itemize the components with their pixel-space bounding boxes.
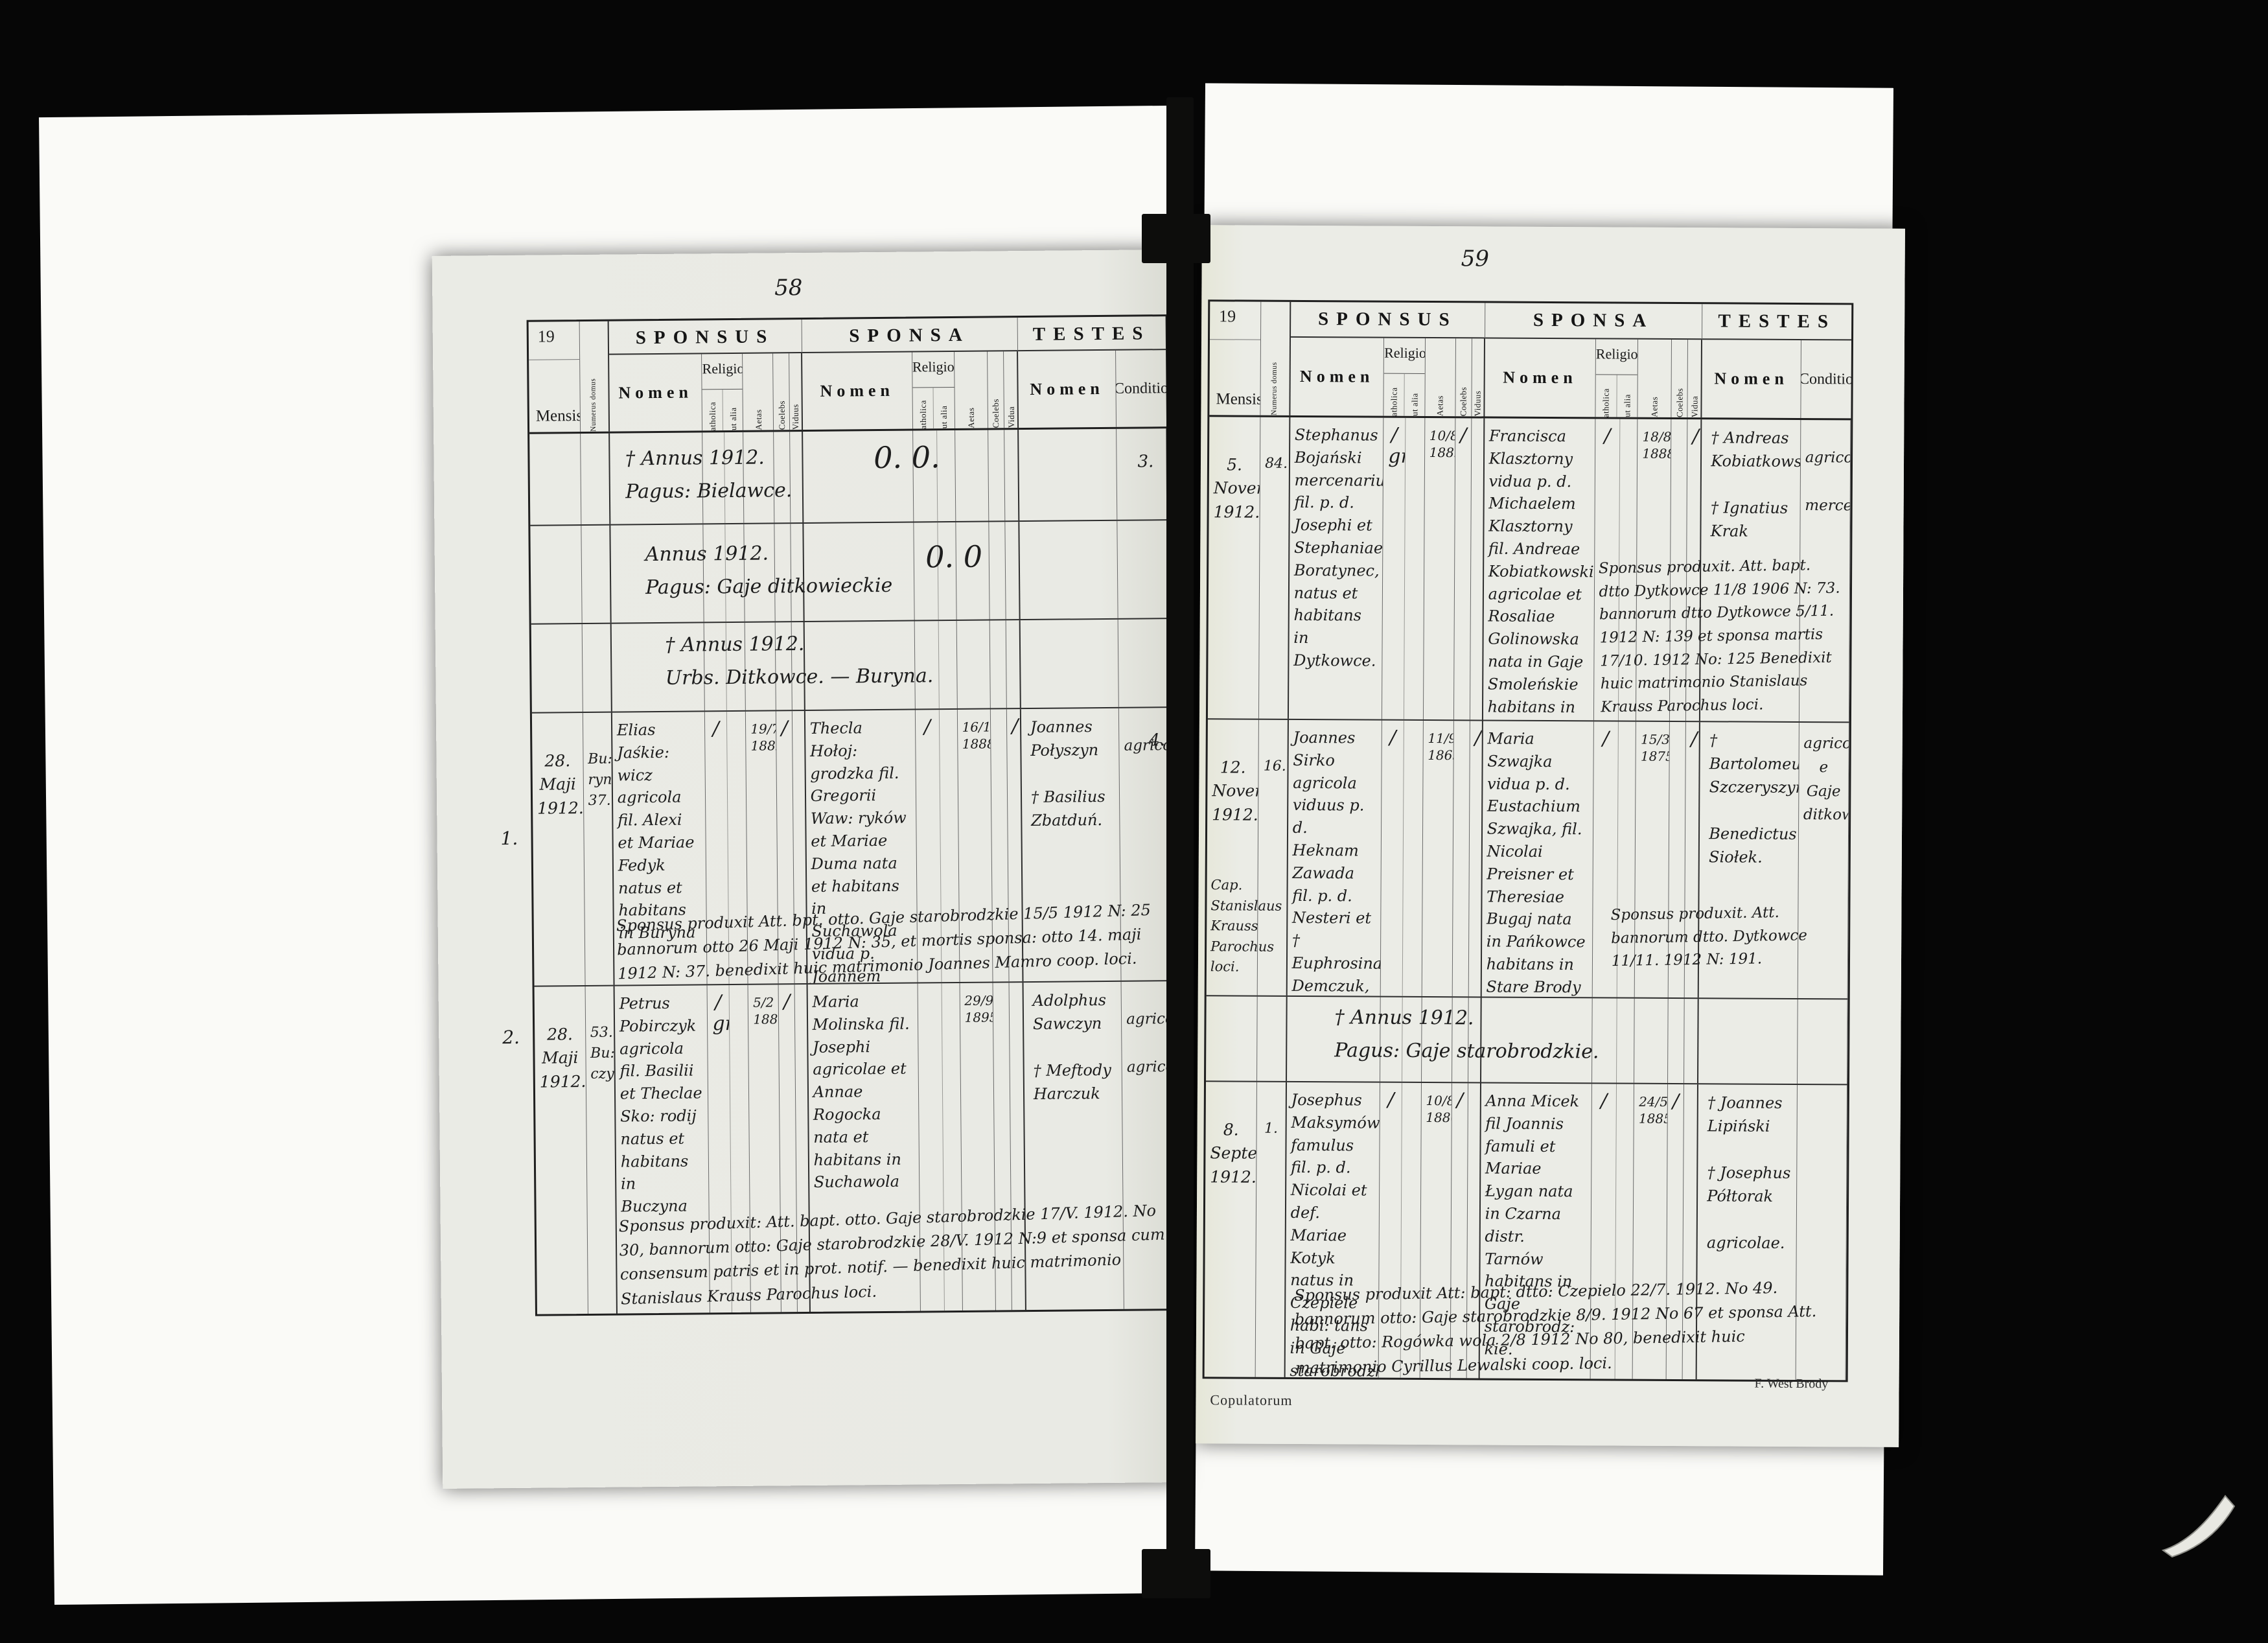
sponsa-vidua-header: Vidua [1688, 340, 1702, 417]
sponsus-religio-header: Religio Catholica Aut alia [702, 354, 743, 431]
register-page-left: 58 3. 4. 19 Mensis Numerus domus SPONSUS… [432, 250, 1182, 1489]
conditio-label: Conditio [1116, 350, 1166, 427]
table-header: 19 Mensis Numerus domus SPONSUS SPONSA T… [529, 316, 1166, 434]
record-row-3: 8. Septembris 1912. 1. Josephus Maksymów… [1205, 1082, 1847, 1380]
sponsus-group-header: SPONSUS [1291, 302, 1485, 339]
mensis-cell: 5. Novembris 1912. [1208, 417, 1261, 718]
sponsus-nomen-cell: Joannes Sirko agricola viduus p. d. Hekn… [1287, 720, 1382, 996]
aut-alia-label: Aut alia [728, 390, 737, 430]
testes-nomen-header: Nomen [1018, 351, 1117, 428]
record-row-2: 12. Novembris 1912. 16. Joannes Sirko ag… [1207, 719, 1849, 999]
coelebs-label: Coelebs [1459, 338, 1468, 416]
cell [1206, 996, 1258, 1080]
section-ditto-mark: 0. 0 [925, 539, 982, 575]
aetas-label: Aetas [1650, 340, 1659, 417]
sponsus-viduus-header: Viduus [789, 353, 803, 430]
coelebs-label: Coelebs [1675, 340, 1684, 417]
cell [1006, 522, 1021, 619]
catholica-label: Catholica [918, 388, 927, 428]
record-note: Sponsus produxit. Att. bapt. dtto Dytkow… [1599, 553, 1845, 719]
mensis-cell: 8. Septembris 1912. [1205, 1082, 1258, 1377]
year-prefix: 19 [529, 321, 579, 360]
cell [988, 430, 1006, 520]
sponsus-catholica-cell: ∕ [1381, 721, 1404, 996]
table-header: 19 Mensis Numerus domus SPONSUS SPONSA T… [1209, 301, 1851, 420]
sponsa-religio-header: Religio Catholica Aut alia [912, 352, 955, 429]
record-ordinal: 1. [500, 828, 518, 849]
cell [529, 434, 581, 525]
record-note: Sponsus produxit. Att. bannorum dtto. Dy… [1610, 901, 1836, 973]
sponsa-vidua-header: Vidua [1004, 351, 1019, 428]
cell [989, 522, 1006, 619]
cell [790, 432, 804, 522]
cell [939, 621, 958, 708]
sponsus-viduus-header: Viduus [1472, 338, 1485, 416]
sponsus-nomen-cell: Stephanus Bojański mercenarius fil. p. d… [1289, 417, 1384, 719]
numerus-cell: 1. [1256, 1082, 1287, 1377]
viduus-label: Viduus [791, 353, 800, 430]
record-ordinal: 2. [502, 1026, 520, 1047]
cell [1634, 999, 1668, 1083]
cell [581, 526, 612, 623]
section-row: Annus 1912. Pagus: Gaje ditkowieckie 0. … [530, 520, 1168, 625]
mensis-header: Mensis [536, 407, 581, 426]
section-annotation: † Annus 1912. Pagus: Bielawce. [625, 441, 793, 508]
record-row-1: 28. Maji 1912. Bu: ryna 37. Elias Jaśkie… [532, 708, 1172, 987]
sponsus-coelebs-cell: ∕ [1454, 418, 1472, 719]
religio-label: Religio [912, 352, 954, 388]
sponsus-group-header: SPONSUS [608, 320, 802, 355]
sponsus-aut-alia-cell [1404, 418, 1425, 719]
cell [1668, 999, 1685, 1083]
sponsa-nomen-cell: Francisca Klasztorny vidua p. d. Michael… [1483, 418, 1596, 720]
cell [1019, 429, 1118, 520]
aetas-label: Aetas [1436, 338, 1445, 416]
sponsa-nomen-header: Nomen [802, 353, 913, 430]
page-number-left: 58 [774, 275, 803, 301]
copulatorum-footer-label: Copulatorum [1210, 1392, 1292, 1409]
section-annotation: † Annus 1912. Urbs. Ditkowce. — Buryna. [665, 626, 933, 695]
cell [1006, 620, 1021, 708]
section-ditto-mark: 0. 0. [874, 439, 940, 475]
aut-alia-label: Aut alia [940, 388, 949, 428]
sponsus-religio-header: Religio Catholica Aut alia [1384, 338, 1426, 416]
testes-group-header: TESTES [1702, 304, 1851, 340]
register-table-right: 19 Mensis Numerus domus SPONSUS SPONSA T… [1203, 299, 1854, 1382]
aut-alia-label: Aut alia [1410, 374, 1418, 416]
catholica-label: Catholica [1602, 375, 1610, 417]
sponsa-religio-header: Religio Catholica Aut alia [1595, 339, 1638, 417]
cell [1118, 619, 1169, 707]
cell [1798, 999, 1848, 1084]
cell [1118, 520, 1168, 618]
vidua-label: Vidua [1006, 351, 1015, 428]
cell [581, 434, 610, 524]
mensis-cell: 28. Maji 1912. [535, 986, 588, 1314]
sponsa-aetas-header: Aetas [1638, 340, 1672, 417]
numerus-domus-header: Numerus domus [579, 321, 610, 432]
sponsa-nomen-header: Nomen [1485, 338, 1596, 417]
testes-nomen-header: Nomen [1702, 340, 1801, 418]
mensis-cell: 28. Maji 1912. [532, 713, 585, 986]
aut-alia-label: Aut alia [1623, 375, 1631, 417]
cell [1257, 997, 1287, 1081]
sponsus-aetas-cell: 11/9. 1865 [1422, 721, 1454, 996]
testes-group-header: TESTES [1017, 316, 1165, 351]
religio-label: Religio [1596, 339, 1638, 375]
record-note: Sponsus produxit Att: bapt: dtto: Czepie… [1294, 1276, 1841, 1381]
numerus-cell: Bu: ryna 37. [583, 713, 615, 985]
record-note: Sponsus produxit: Att. bapt. otto. Gaje … [618, 1199, 1168, 1312]
sponsa-group-header: SPONSA [1485, 303, 1703, 340]
scanned-register-photo: { "header": { "year_printed": "19", "men… [0, 0, 2268, 1643]
book-spine-strip [1166, 97, 1194, 1596]
cell [582, 624, 612, 712]
cell [530, 526, 582, 623]
numerus-domus-label: Numerus domus [1271, 302, 1279, 415]
section-annotation: † Annus 1912. Pagus: Gaje starobrodzkie. [1334, 1001, 1599, 1068]
sponsus-coelebs-cell [1453, 721, 1470, 996]
coelebs-label: Coelebs [991, 351, 1000, 428]
sponsa-aetas-header: Aetas [955, 352, 988, 428]
conditio-header: Conditio [1801, 340, 1851, 418]
section-row: † Annus 1912. Pagus: Bielawce. 0. 0. [529, 428, 1167, 526]
sponsus-aetas-header: Aetas [1425, 338, 1456, 416]
register-table-left: 19 Mensis Numerus domus SPONSUS SPONSA T… [527, 314, 1176, 1316]
mensis-header: Mensis [1216, 390, 1261, 408]
catholica-label: Catholica [1389, 374, 1398, 416]
section-annotation: Annus 1912. Pagus: Gaje ditkowieckie [645, 536, 892, 604]
catholica-label: Catholica [708, 390, 717, 430]
sponsus-aetas-header: Aetas [743, 353, 774, 430]
cell [1020, 620, 1119, 708]
page-corner-curl [2158, 1478, 2249, 1562]
sponsus-aetas-cell: 10/8. 1889. [1424, 418, 1456, 719]
section-row: † Annus 1912. Pagus: Gaje starobrodzkie. [1206, 996, 1848, 1085]
cell [1004, 430, 1019, 520]
cell [1617, 999, 1635, 1083]
corner-cell: 19 Mensis [1209, 301, 1261, 415]
cell [1117, 428, 1167, 520]
corner-cell: 19 Mensis [529, 321, 581, 432]
aetas-label: Aetas [754, 354, 763, 430]
book-spine-tab-top [1142, 214, 1210, 263]
numerus-domus-label: Numerus domus [590, 321, 598, 432]
record-row-1: 5. Novembris 1912. 84. Stephanus Bojańsk… [1208, 417, 1851, 723]
religio-label: Religio [1384, 338, 1425, 374]
sponsa-coelebs-header: Coelebs [988, 351, 1005, 428]
sponsus-viduus-cell: ∕ [1469, 721, 1483, 996]
sponsus-aut-alia-cell [1403, 721, 1424, 996]
printer-imprint: F. West Brody [1755, 1377, 1829, 1392]
coelebs-label: Coelebs [777, 353, 786, 430]
cell [1698, 999, 1798, 1084]
numerus-cell: 53. Bu: czyna [585, 986, 618, 1314]
section-row: † Annus 1912. Urbs. Ditkowce. — Buryna. [531, 619, 1169, 714]
year-prefix: 19 [1210, 301, 1260, 340]
sponsa-coelebs-header: Coelebs [1671, 340, 1688, 417]
religio-label: Religio [702, 354, 742, 390]
conditio-header: Conditio [1116, 350, 1166, 427]
sponsa-nomen-cell: Maria Szwajka vidua p. d. Eustachium Szw… [1481, 721, 1593, 997]
cell [989, 620, 1007, 708]
cell [955, 430, 989, 521]
officiant-note: Cap. Stanislaus Krauss Parochus loci. [1210, 875, 1295, 977]
aetas-label: Aetas [966, 352, 975, 428]
register-page-right: 59 19 Mensis Numerus domus SPONSUS SPONS… [1196, 225, 1905, 1447]
cell [1684, 999, 1698, 1083]
sponsa-group-header: SPONSA [802, 318, 1018, 353]
page-number-right: 59 [1461, 246, 1489, 272]
sponsus-viduus-cell [1470, 418, 1485, 719]
sponsus-nomen-header: Nomen [609, 354, 703, 431]
vidua-label: Vidua [1690, 340, 1699, 417]
book-spine-tab-bottom [1142, 1549, 1210, 1598]
numerus-cell: 84. [1259, 417, 1290, 719]
sponsus-coelebs-header: Coelebs [1455, 338, 1472, 416]
sponsus-nomen-header: Nomen [1290, 338, 1384, 416]
cell [531, 624, 583, 712]
viduus-label: Viduus [1474, 338, 1483, 416]
cell [956, 621, 990, 708]
cell [1019, 521, 1118, 619]
conditio-label: Conditio [1801, 340, 1851, 418]
sponsus-catholica-cell: ∕ gr. [1382, 418, 1406, 719]
numerus-domus-header: Numerus domus [1261, 302, 1291, 415]
record-row-2: 28. Maji 1912. 53. Bu: czyna Petrus Pobi… [535, 981, 1174, 1314]
sponsus-coelebs-header: Coelebs [773, 353, 790, 430]
